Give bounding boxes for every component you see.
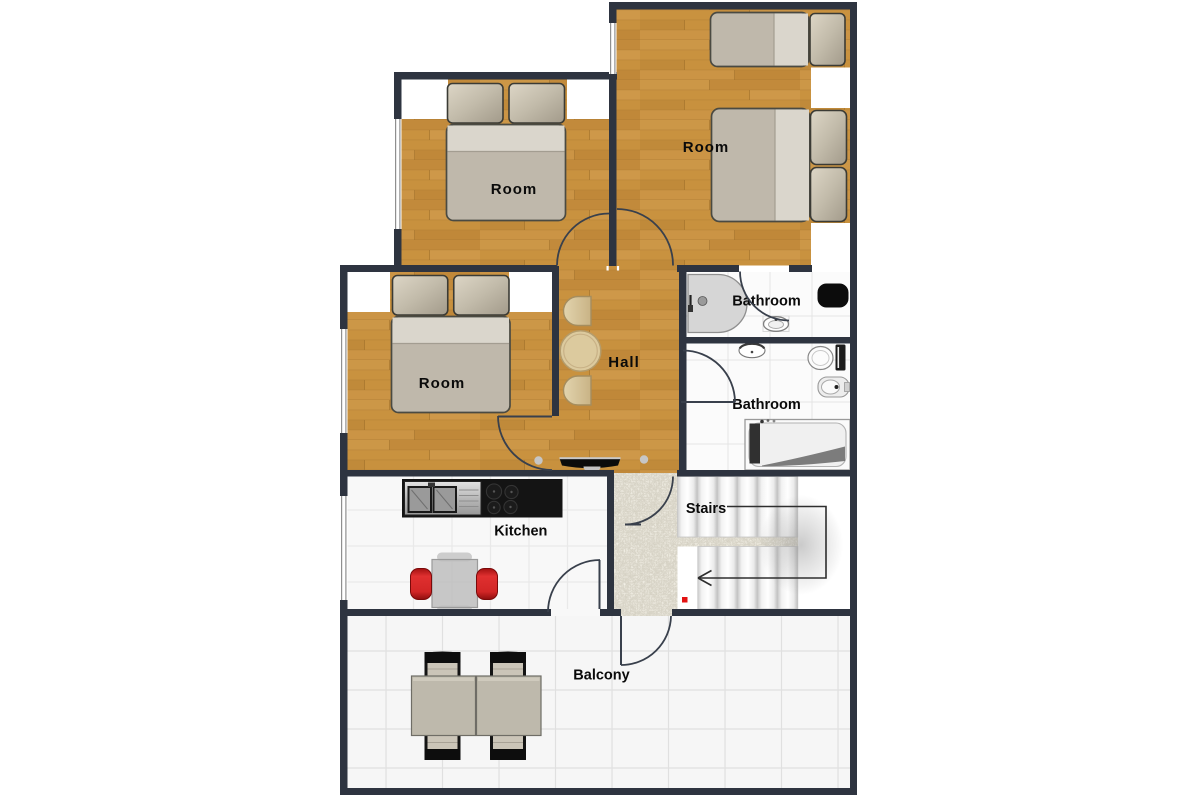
svg-text:Kitchen: Kitchen	[494, 524, 547, 540]
svg-text:Room: Room	[491, 181, 538, 198]
svg-text:Room: Room	[419, 375, 466, 392]
svg-text:Balcony: Balcony	[573, 668, 629, 684]
svg-text:Bathroom: Bathroom	[732, 294, 800, 310]
svg-text:Stairs: Stairs	[686, 501, 726, 517]
svg-text:Room: Room	[683, 139, 730, 156]
svg-text:Hall: Hall	[608, 354, 640, 371]
svg-text:Bathroom: Bathroom	[732, 397, 800, 413]
